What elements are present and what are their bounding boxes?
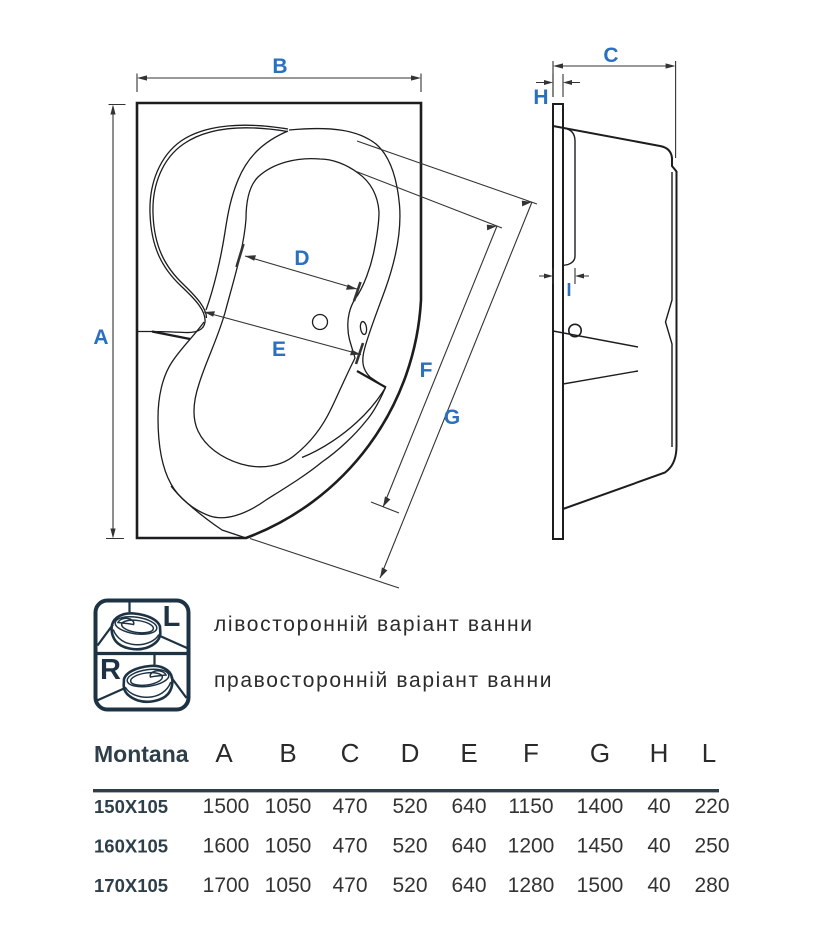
svg-text:правосторонній варіант ванни: правосторонній варіант ванни [214,669,553,692]
svg-text:470: 470 [332,835,367,858]
svg-text:250: 250 [694,835,729,858]
svg-text:H: H [533,86,548,109]
svg-text:1400: 1400 [577,795,624,818]
svg-text:R: R [100,654,121,686]
svg-text:1450: 1450 [577,835,624,858]
svg-text:280: 280 [694,874,729,897]
svg-text:F: F [420,359,433,382]
svg-text:1280: 1280 [508,874,555,897]
svg-text:520: 520 [392,795,427,818]
svg-text:1500: 1500 [203,795,250,818]
svg-text:I: I [566,280,571,300]
svg-text:470: 470 [332,874,367,897]
svg-text:C: C [341,738,360,768]
svg-text:1050: 1050 [265,835,312,858]
svg-text:1500: 1500 [577,874,624,897]
svg-text:1150: 1150 [508,795,553,818]
svg-text:F: F [523,738,539,768]
svg-text:640: 640 [451,874,486,897]
svg-text:C: C [603,44,618,67]
svg-text:150X105: 150X105 [94,796,168,817]
svg-text:E: E [460,738,477,768]
svg-text:1050: 1050 [265,795,312,818]
svg-text:D: D [401,738,420,768]
svg-text:G: G [590,738,610,768]
svg-text:D: D [294,247,309,270]
svg-text:470: 470 [332,795,367,818]
svg-text:220: 220 [694,795,729,818]
svg-text:160X105: 160X105 [94,836,168,857]
svg-text:B: B [279,738,296,768]
svg-text:B: B [272,55,287,78]
svg-text:лівосторонній варіант ванни: лівосторонній варіант ванни [214,613,534,636]
svg-text:H: H [650,738,669,768]
svg-text:1050: 1050 [265,874,312,897]
svg-text:640: 640 [451,795,486,818]
svg-text:L: L [163,601,181,633]
svg-text:520: 520 [392,874,427,897]
svg-text:Montana: Montana [94,741,189,767]
svg-text:40: 40 [647,835,670,858]
svg-text:1700: 1700 [203,874,250,897]
svg-text:520: 520 [392,835,427,858]
svg-text:640: 640 [451,835,486,858]
svg-text:1200: 1200 [508,835,555,858]
svg-text:A: A [215,738,233,768]
svg-text:E: E [272,338,286,361]
svg-text:1600: 1600 [203,835,250,858]
svg-text:L: L [702,738,716,768]
svg-text:170X105: 170X105 [94,875,168,896]
svg-text:G: G [444,406,460,429]
svg-text:40: 40 [647,795,670,818]
svg-text:40: 40 [647,874,670,897]
svg-text:A: A [93,326,108,349]
